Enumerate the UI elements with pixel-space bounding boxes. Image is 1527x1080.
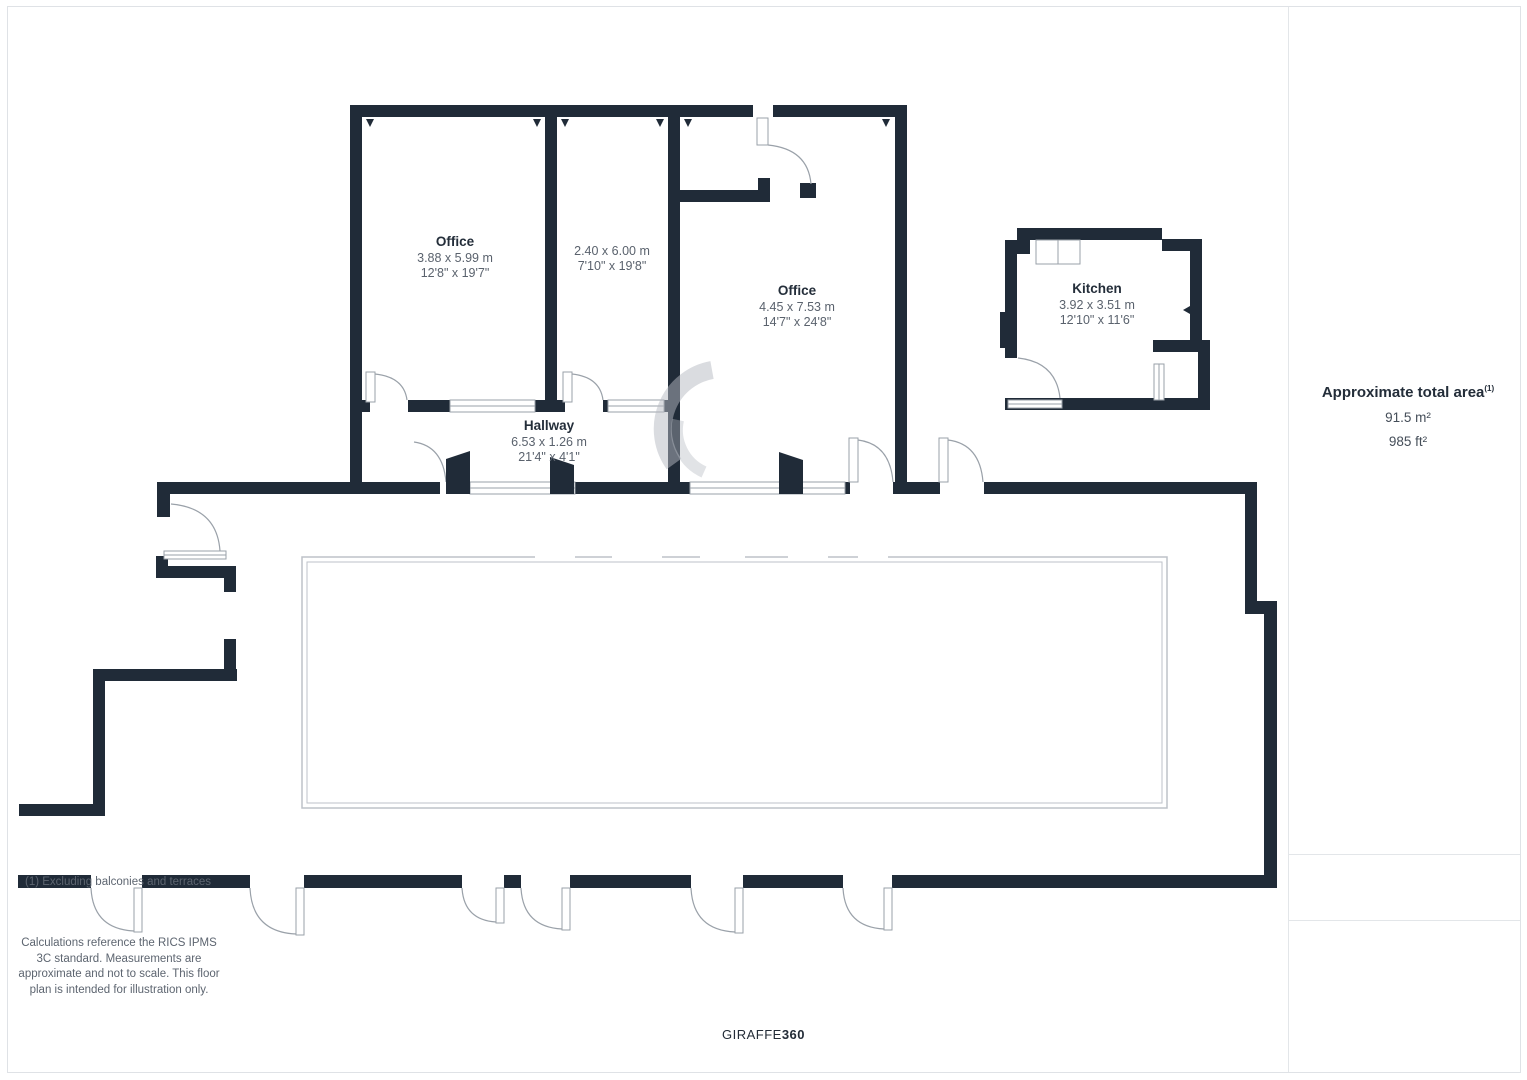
walls [18,105,1277,888]
room-label-office-2: Office 4.45 x 7.53 m 14'7" x 24'8" [697,283,897,330]
info-sidebar: Approximate total area(1) 91.5 m² 985 ft… [1289,0,1527,1080]
watermark [663,370,712,472]
total-area-ft2: 985 ft² [1289,434,1527,449]
room-dim-metric: 6.53 x 1.26 m [449,435,649,450]
area-footnote: (1) Excluding balconies and terraces [8,876,228,888]
room-label-hallway: Hallway 6.53 x 1.26 m 21'4" x 4'1" [449,418,649,465]
terrace-outline [302,557,1167,808]
sidebar-section-divider [1289,920,1520,921]
total-area-title-text: Approximate total area [1322,384,1485,401]
room-name: Office [697,283,897,298]
room-dim-imperial: 14'7" x 24'8" [697,315,897,330]
brand-logo: GIRAFFE360 [0,1027,1527,1042]
floorplan-page: Office 3.88 x 5.99 m 12'8" x 19'7" 2.40 … [0,0,1527,1080]
room-name: Hallway [449,418,649,433]
room-dim-metric: 3.92 x 3.51 m [997,298,1197,313]
room-label-unnamed: 2.40 x 6.00 m 7'10" x 19'8" [512,244,712,274]
room-label-kitchen: Kitchen 3.92 x 3.51 m 12'10" x 11'6" [997,281,1197,328]
room-dim-imperial: 7'10" x 19'8" [512,259,712,274]
room-dim-metric: 4.45 x 7.53 m [697,300,897,315]
total-area-block: Approximate total area(1) 91.5 m² 985 ft… [1289,384,1527,449]
vestibule-door-gap [753,104,773,118]
room-dim-imperial: 21'4" x 4'1" [449,450,649,465]
disclaimer-text: Calculations reference the RICS IPMS 3C … [13,936,225,998]
total-area-title: Approximate total area(1) [1289,384,1527,401]
room-name: Kitchen [997,281,1197,296]
total-area-note-ref: (1) [1484,384,1494,393]
room-dim-imperial: 12'10" x 11'6" [997,313,1197,328]
total-area-m2: 91.5 m² [1289,410,1527,425]
brand-number: 360 [782,1027,805,1042]
brand-name: GIRAFFE [722,1027,782,1042]
doors [91,118,1060,935]
sidebar-section-divider [1289,854,1520,855]
room-dim-metric: 2.40 x 6.00 m [512,244,712,259]
